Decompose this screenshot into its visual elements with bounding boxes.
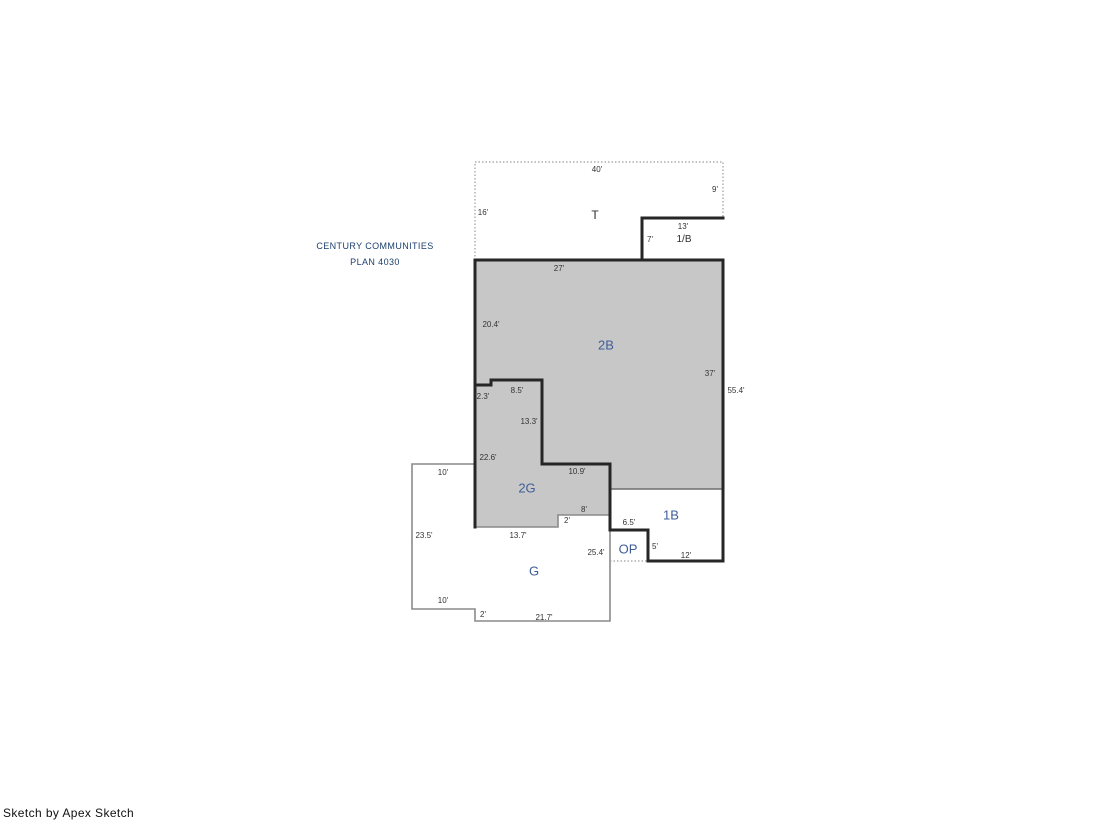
dim-label: 13' xyxy=(678,223,688,231)
dim-label: 2' xyxy=(480,611,486,619)
plan-title: CENTURY COMMUNITIES PLAN 4030 xyxy=(316,241,433,267)
plan-number: PLAN 4030 xyxy=(316,257,433,267)
dim-label: 13.7' xyxy=(509,532,526,540)
area-label: OP xyxy=(619,543,638,556)
apex-sketch-credit: Sketch by Apex Sketch xyxy=(3,806,134,820)
dim-label: 22.6' xyxy=(479,454,496,462)
builder-name: CENTURY COMMUNITIES xyxy=(316,241,433,251)
zone-label: T xyxy=(591,209,598,221)
area-label: 2G xyxy=(518,482,535,495)
dim-label: 10' xyxy=(438,469,448,477)
area-label: G xyxy=(529,565,539,578)
dim-label: 16' xyxy=(478,209,488,217)
dim-label: 25.4' xyxy=(587,549,604,557)
dim-label: 7' xyxy=(647,236,653,244)
dim-label: 27' xyxy=(554,265,564,273)
dim-label: 13.3' xyxy=(520,418,537,426)
area-label: 2B xyxy=(598,339,614,352)
dim-label: 12' xyxy=(681,552,691,560)
dim-label: 2.3' xyxy=(477,393,490,401)
dim-label: 55.4' xyxy=(727,387,744,395)
dim-label: 10.9' xyxy=(568,468,585,476)
dim-label: 23.5' xyxy=(415,532,432,540)
sketch-canvas: 2B2GG1BOPT1/B40'9'16'13'7'27'20.4'37'55.… xyxy=(0,0,1119,821)
dim-label: 5' xyxy=(652,543,658,551)
dim-label: 20.4' xyxy=(482,321,499,329)
area-label: 1B xyxy=(663,509,679,522)
dim-label: 40' xyxy=(592,166,602,174)
dim-label: 8' xyxy=(581,506,587,514)
dim-label: 6.5' xyxy=(623,519,636,527)
dim-label: 21.7' xyxy=(535,614,552,622)
zone-label: 1/B xyxy=(676,235,691,245)
dim-label: 10' xyxy=(438,597,448,605)
dim-label: 8.5' xyxy=(511,387,524,395)
dim-label: 37' xyxy=(705,370,715,378)
dim-label: 2' xyxy=(564,517,570,525)
label-layer: 2B2GG1BOPT1/B40'9'16'13'7'27'20.4'37'55.… xyxy=(0,0,1119,821)
dim-label: 9' xyxy=(712,186,718,194)
